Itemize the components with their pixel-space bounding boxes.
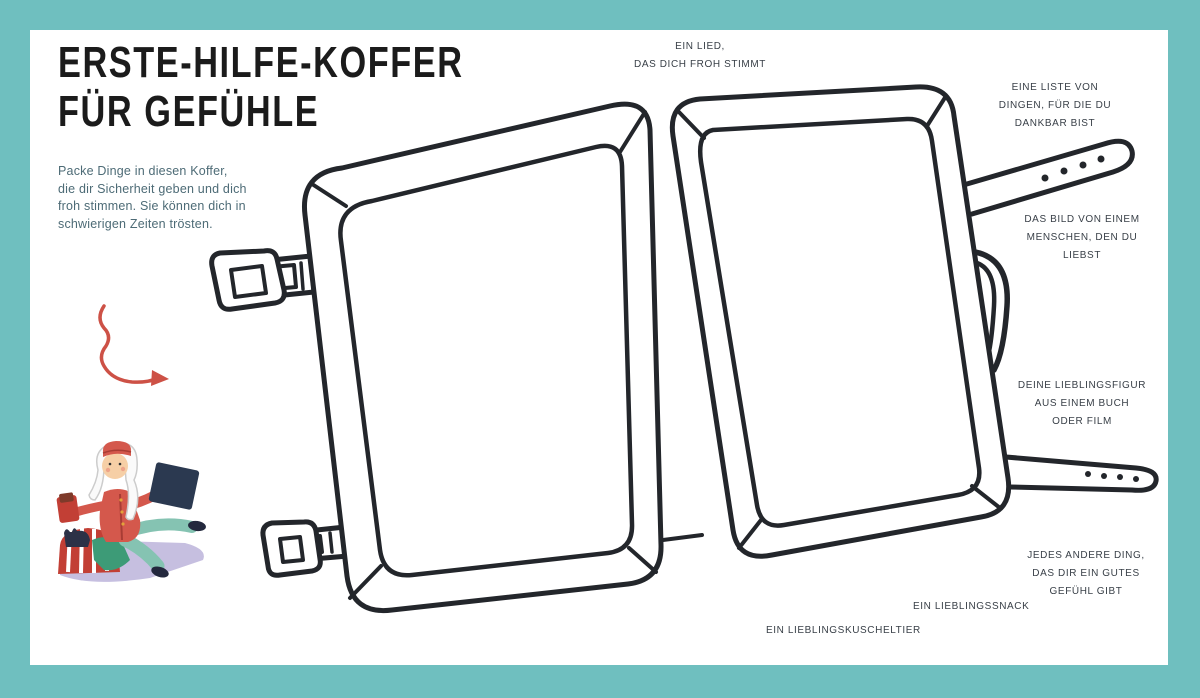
character-illustration [56,441,206,582]
annotation-favorite-plush: EIN LIEBLINGSKUSCHELTIER [766,622,921,640]
annotation-photo-loved-one: DAS BILD VON EINEM MENSCHEN, DEN DU LIEB… [982,211,1182,265]
squiggle-arrow-icon [100,306,169,386]
bottom-strap-icon [1006,457,1156,490]
annotation-anything-else: JEDES ANDERE DING, DAS DIR EIN GUTES GEF… [986,547,1186,601]
top-strap-icon [960,141,1132,214]
annotation-song: EIN LIED, DAS DICH FROH STIMMT [600,38,800,74]
worksheet-page: ERSTE-HILFE-KOFFER FÜR GEFÜHLE Packe Din… [30,30,1168,665]
annotation-favorite-snack: EIN LIEBLINGSSNACK [913,598,1029,616]
left-case-half [304,104,661,610]
bottom-latch-icon [263,522,348,575]
annotation-favorite-figure: DEINE LIEBLINGSFIGUR AUS EINEM BUCH ODER… [982,377,1182,431]
suitcase-illustration [212,87,1156,611]
worksheet-screen: { "meta": { "language": "de", "page_type… [0,0,1200,698]
right-case-half [663,87,1009,556]
annotation-gratitude-list: EINE LISTE VON DINGEN, FÜR DIE DU DANKBA… [955,79,1155,133]
top-latch-icon [212,251,314,310]
